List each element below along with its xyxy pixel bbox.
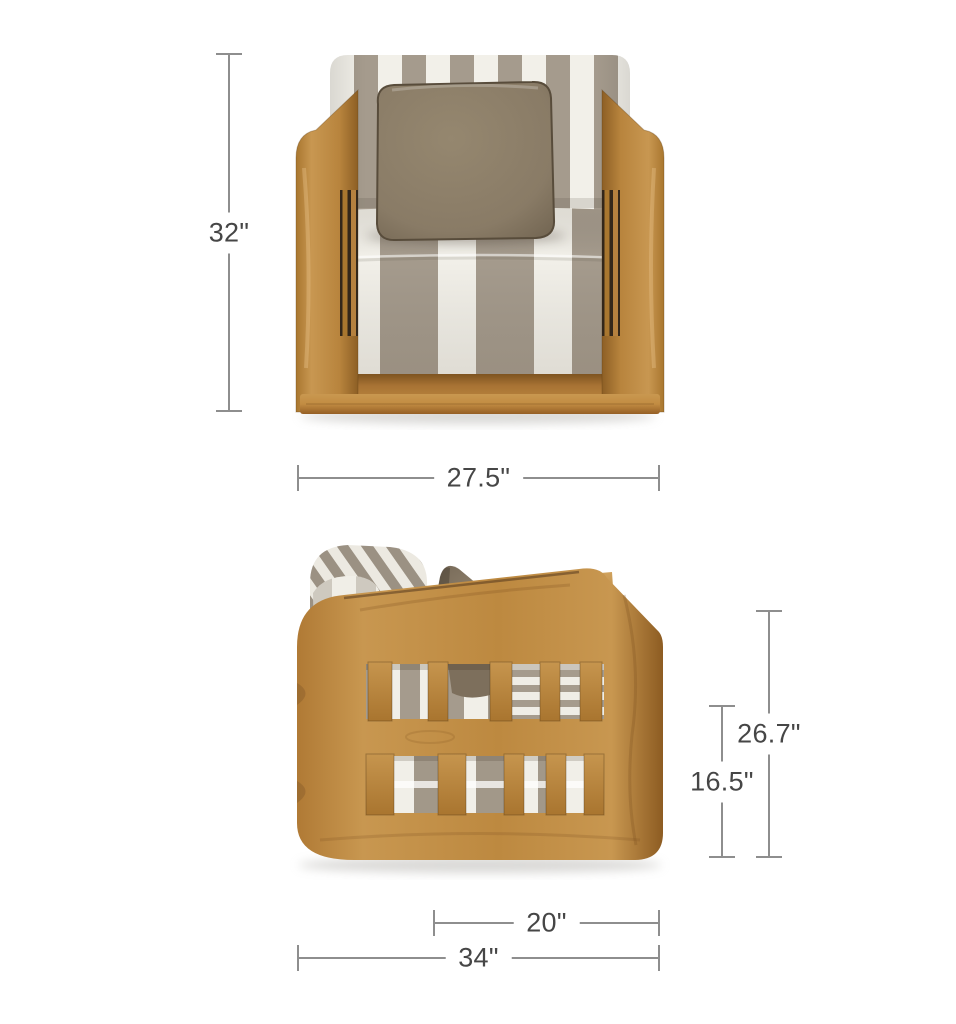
upper-slat-window [366,662,604,721]
left-armrest [296,90,358,412]
seat-height-dimension: 16.5" [721,705,723,858]
dimension-cap [709,705,735,707]
front-view-illustration [280,38,680,430]
dimension-cap [658,910,660,936]
dimension-cap [658,945,660,971]
product-dimension-diagram: 32" 27.5" 26.7" 16.5" 20" 34" [0,0,956,1024]
dimension-label: 20" [513,903,580,944]
overall-depth-dimension: 34" [297,957,660,959]
dimension-label: 16.5" [677,761,767,802]
lower-slat-window [366,754,604,815]
dimension-cap [297,945,299,971]
back-height-dimension: 26.7" [768,610,770,858]
right-armrest [602,90,664,412]
dimension-cap [216,410,242,412]
dimension-cap [709,856,735,858]
throw-pillow [377,82,554,240]
dimension-cap [756,856,782,858]
dimension-label: 27.5" [434,458,524,499]
side-view-illustration [280,535,680,880]
width-dimension: 27.5" [297,477,660,479]
seat-depth-dimension: 20" [433,922,660,924]
dimension-label: 26.7" [724,714,814,755]
dimension-cap [658,465,660,491]
base-plinth [300,394,660,414]
dimension-cap [756,610,782,612]
dimension-cap [433,910,435,936]
dimension-cap [297,465,299,491]
dimension-label: 34" [445,938,512,979]
dimension-label: 32" [196,212,263,253]
dimension-cap [216,53,242,55]
height-dimension: 32" [228,53,230,412]
